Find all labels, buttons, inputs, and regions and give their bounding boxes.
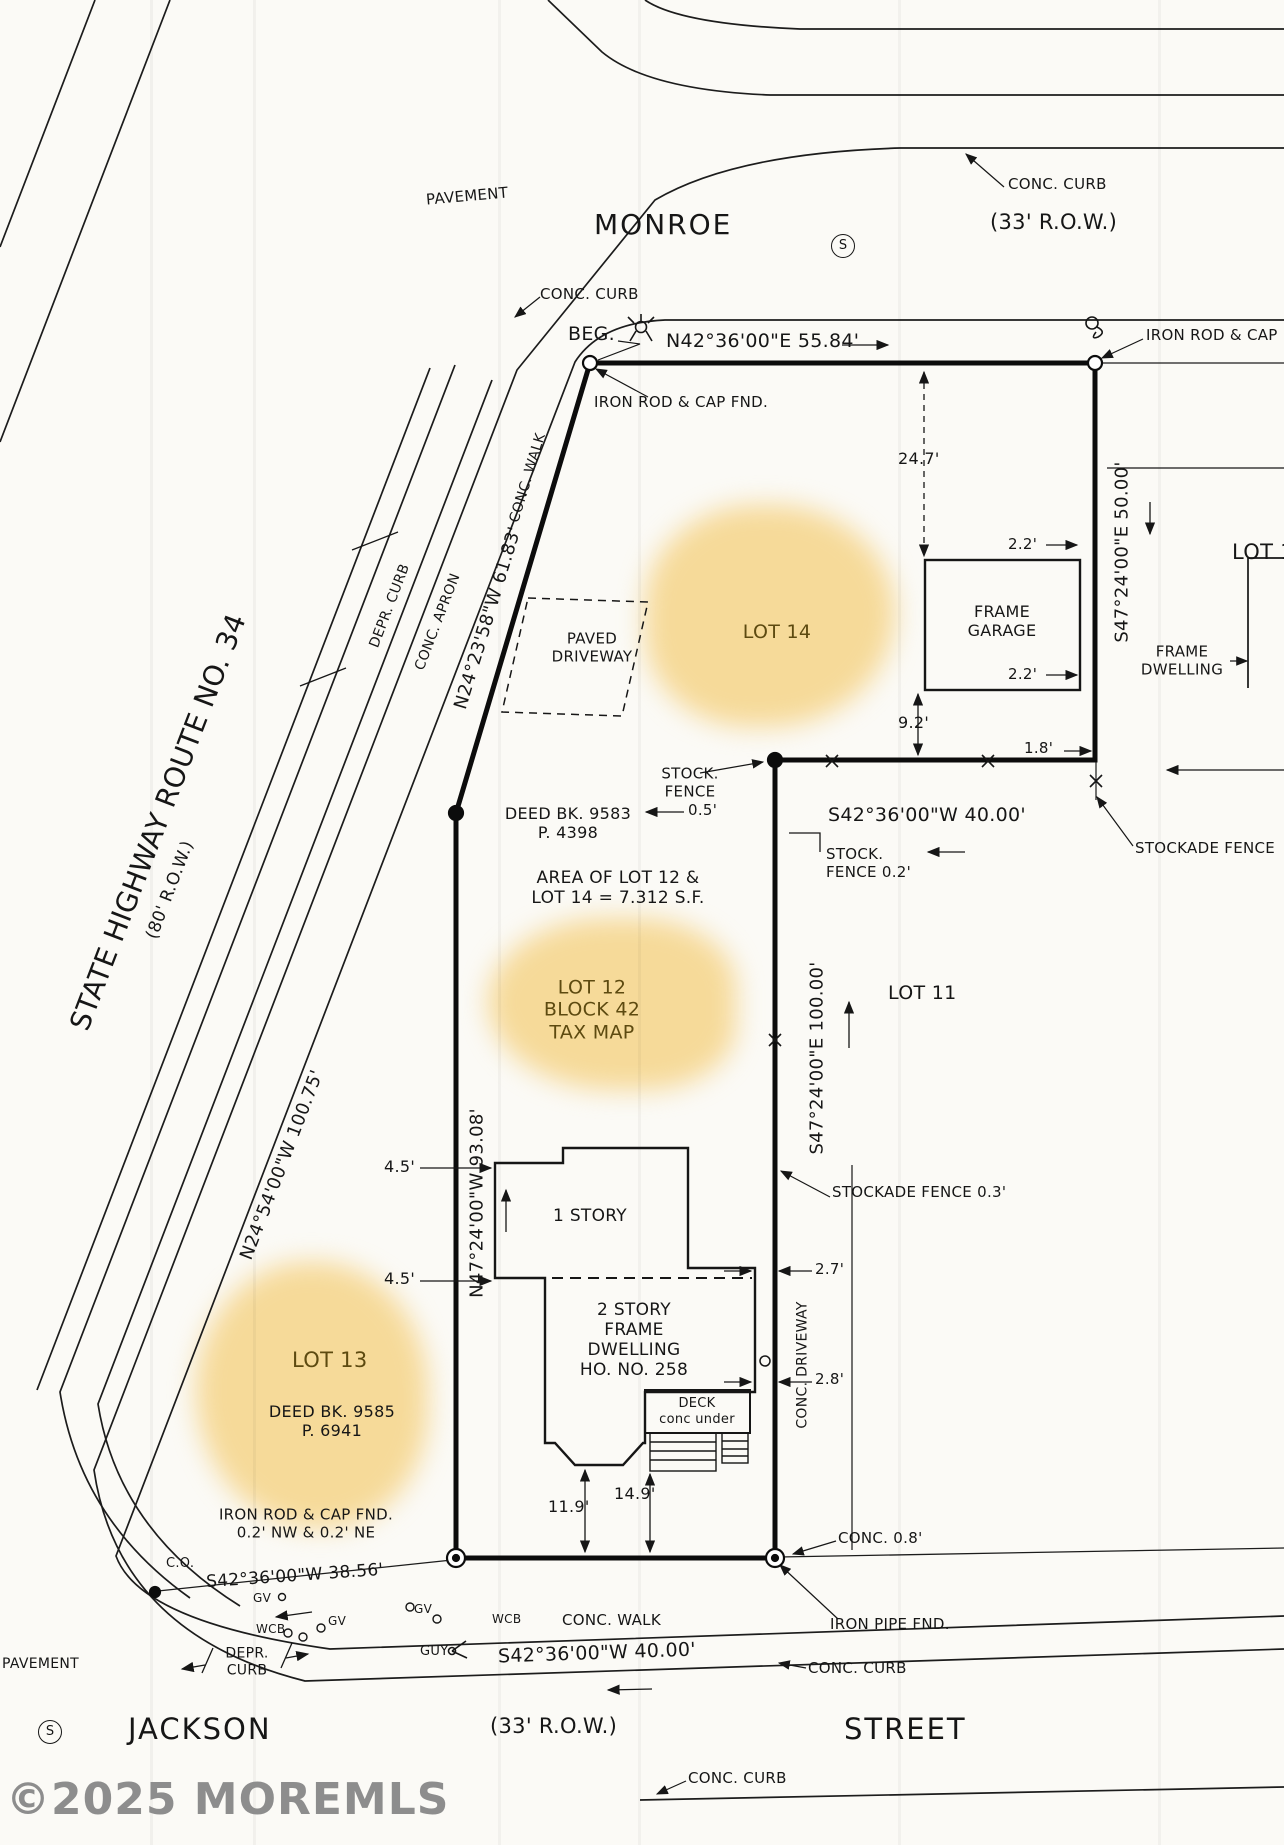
stockade-fence-03-label: STOCKADE FENCE 0.3' — [832, 1184, 1006, 1202]
lot-boundary — [456, 363, 1095, 1558]
conc-curb-bottom1-label: CONC. CURB — [808, 1660, 907, 1678]
dim-24-7: 24.7' — [898, 450, 940, 469]
street-name: STREET — [844, 1712, 967, 1746]
deed-9583-label: DEED BK. 9583 P. 4398 — [505, 805, 631, 843]
conc-curb-top2-label: CONC. CURB — [540, 286, 639, 304]
lot1-label: LOT 1 — [1232, 540, 1284, 565]
one-story-label: 1 STORY — [553, 1206, 627, 1226]
neighbor-dwelling-label: FRAME DWELLING — [1141, 643, 1223, 678]
depr-curb-line-b — [37, 368, 430, 1390]
depr-curb-line-a — [60, 365, 455, 1598]
pavement-bottom-label: PAVEMENT — [2, 1656, 79, 1673]
dwelling-label: 2 STORY FRAME DWELLING HO. NO. 258 — [580, 1300, 688, 1380]
beg-label: BEG. — [568, 323, 615, 345]
dim-4-5-a: 4.5' — [384, 1158, 415, 1177]
wcb1-label: WCB — [256, 1622, 285, 1636]
deck-label: DECK conc under — [659, 1396, 735, 1429]
dim-1-8: 1.8' — [1024, 740, 1053, 758]
monroe-row-label: (33' R.O.W.) — [990, 210, 1117, 235]
depr-curb-bottom-label: DEPR. CURB — [225, 1645, 268, 1678]
stock-fence-left-label: STOCK. FENCE — [661, 765, 718, 800]
bearing-mid-40-label: S42°36'00"W 40.00' — [828, 804, 1026, 826]
dim-14-9: 14.9' — [614, 1485, 656, 1504]
conc-curb-bottom2-label: CONC. CURB — [688, 1770, 787, 1788]
utility-circle — [760, 1356, 770, 1366]
area-note-label: AREA OF LOT 12 & LOT 14 = 7.312 S.F. — [531, 868, 704, 908]
lot12-label: LOT 12 BLOCK 42 TAX MAP — [544, 976, 640, 1043]
north-building-inner — [548, 0, 1284, 95]
dim-11-9: 11.9' — [548, 1498, 590, 1517]
site-symbols — [279, 314, 1103, 1658]
iron-rod-cap-fnd-label: IRON ROD & CAP FND. — [594, 394, 768, 412]
jackson-frontage-right — [779, 1548, 1284, 1557]
iron-pipe-label: IRON PIPE FND. — [830, 1616, 950, 1634]
gv2-label: GV — [328, 1614, 346, 1628]
conc-walk-bottom-label: CONC. WALK — [562, 1612, 661, 1630]
conc-curb-top1-label: CONC. CURB — [1008, 176, 1107, 194]
highway-west-line-2 — [0, 0, 170, 442]
sewer-manhole-bottom-icon: S — [38, 1720, 62, 1744]
jackson-bottom-curb — [640, 1787, 1284, 1800]
dim-2-2-bot: 2.2' — [1008, 666, 1037, 684]
dim-9-2: 9.2' — [898, 714, 929, 733]
survey-plat: PAVEMENT MONROE S (33' R.O.W.) CONC. CUR… — [0, 0, 1284, 1845]
bearing-right-50-label: S47°24'00"E 50.00' — [1111, 461, 1132, 642]
deed-9585-label: DEED BK. 9585 P. 6941 — [269, 1403, 395, 1441]
bearing-east-100-label: S47°24'00"E 100.00' — [806, 961, 827, 1154]
paved-driveway-label: PAVED DRIVEWAY — [552, 630, 633, 665]
stockade-fence-right-label: STOCKADE FENCE — [1135, 840, 1275, 858]
wcb2-label: WCB — [492, 1612, 521, 1626]
stock-fence-02-label: STOCK. FENCE 0.2' — [826, 846, 911, 881]
lot11-label: LOT 11 — [888, 982, 957, 1004]
frame-garage-label: FRAME GARAGE — [968, 603, 1037, 641]
bearing-top-label: N42°36'00"E 55.84' — [666, 330, 859, 352]
monroe-street-name: MONROE — [594, 208, 732, 241]
highway-west-line-1 — [0, 0, 95, 247]
lot14-label: LOT 14 — [743, 621, 812, 643]
sewer-manhole-icon: S — [831, 234, 855, 258]
conc-driveway-label: CONC. DRIVEWAY — [795, 1301, 812, 1428]
bearing-west-93-label: N47°24'00"W 93.08' — [466, 1108, 487, 1298]
iron-rod-nw-label: IRON ROD & CAP FND. 0.2' NW & 0.2' NE — [219, 1506, 393, 1541]
guy-label: GUY — [420, 1644, 448, 1659]
dim-2-7: 2.7' — [815, 1261, 844, 1279]
dim-4-5-b: 4.5' — [384, 1270, 415, 1289]
iron-rod-cap-right-label: IRON ROD & CAP — [1146, 327, 1278, 345]
conc-08-label: CONC. 0.8' — [838, 1530, 923, 1548]
north-building-outer — [645, 0, 1284, 29]
gv3-label: GV — [414, 1602, 432, 1616]
gv1-label: GV — [253, 1591, 271, 1605]
jackson-street-name: JACKSON — [128, 1712, 272, 1746]
mls-watermark: ©2025 MOREMLS — [6, 1774, 449, 1825]
valve-box-icons — [279, 1594, 442, 1642]
dim-2-2-top: 2.2' — [1008, 536, 1037, 554]
stock-fence-05-label: 0.5' — [688, 802, 717, 820]
dim-2-8: 2.8' — [815, 1371, 844, 1389]
jackson-row-label: (33' R.O.W.) — [490, 1714, 617, 1739]
stairs — [650, 1433, 748, 1471]
lot13-label: LOT 13 — [292, 1348, 368, 1373]
co-label: C.O. — [166, 1556, 194, 1571]
monroe-south-curb-conc-walk — [116, 320, 1284, 1649]
